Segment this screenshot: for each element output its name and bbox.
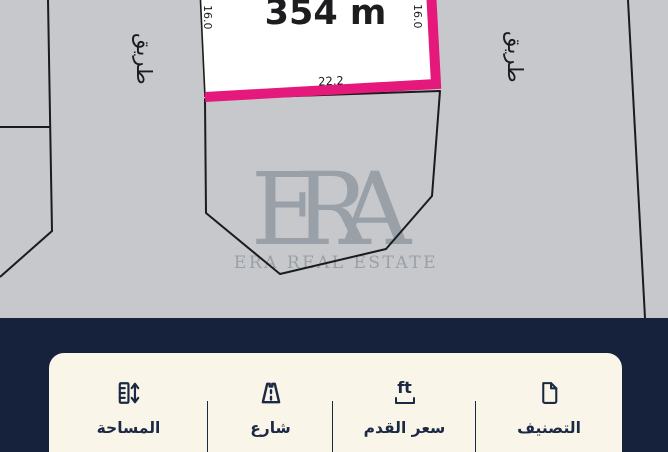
parcel-boundaries-graphic — [0, 0, 668, 318]
ft-icon-text: ft — [397, 380, 412, 396]
lower-parcel-boundary — [205, 91, 440, 274]
info-item-label: التصنيف — [517, 419, 581, 437]
road-icon — [258, 378, 284, 408]
info-item-label: المساحة — [97, 419, 161, 437]
left-parcel-boundary — [0, 0, 52, 277]
area-ruler-icon — [116, 378, 142, 408]
info-card: المساحة شارع ft — [49, 353, 622, 452]
road-label-right: طريق — [503, 31, 527, 83]
info-item-area: المساحة — [49, 353, 208, 452]
document-icon — [537, 378, 562, 408]
real-estate-listing-image: ERA ERA REAL ESTATE 354 m 22.2 16.0 16.0… — [0, 0, 668, 452]
plot-right-dimension: 16.0 — [411, 4, 424, 29]
info-item-label: شارع — [250, 419, 291, 437]
price-per-foot-icon: ft — [392, 378, 418, 408]
road-label-left: طريق — [132, 33, 156, 85]
parcel-map: ERA ERA REAL ESTATE 354 m 22.2 16.0 16.0… — [0, 0, 668, 318]
info-item-classification: التصنيف — [476, 353, 622, 452]
plot-area-label: 354 m — [253, 0, 398, 31]
right-parcel-boundary — [628, 0, 645, 318]
plot-bottom-dimension: 22.2 — [305, 73, 358, 90]
info-item-price-per-foot: ft سعر القدم — [333, 353, 476, 452]
info-item-street: شارع — [208, 353, 333, 452]
info-panel: المساحة شارع ft — [0, 318, 668, 452]
plot-left-dimension: 16.0 — [201, 5, 214, 30]
info-item-label: سعر القدم — [364, 419, 446, 437]
